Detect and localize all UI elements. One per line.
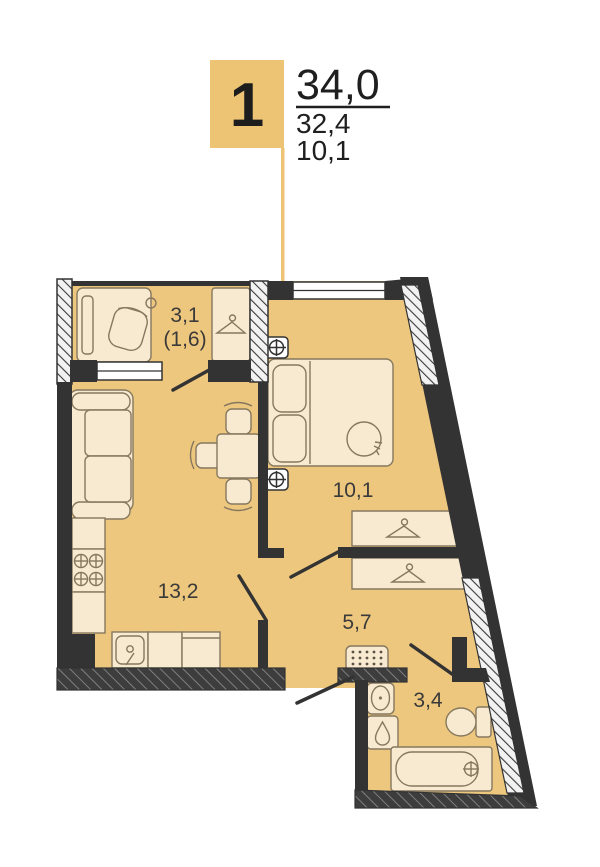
loggia-wardrobe: [212, 288, 250, 361]
bath-sink-icon: [367, 683, 394, 714]
doormat-icon: [346, 646, 388, 671]
loggia-area-label: 3,1: [170, 304, 199, 327]
bedroom-wardrobe-top: [352, 511, 462, 546]
stove-burners-icon: [72, 549, 105, 592]
loggia-reduced-area-label: (1,6): [163, 328, 206, 351]
desk-chair-icon: [77, 288, 156, 362]
toilet-icon: [446, 707, 491, 737]
badge-connector-line: [281, 148, 285, 281]
unit-badge: 1: [210, 60, 285, 281]
water-heater: [367, 716, 398, 749]
living-kitchen-area-label: 13,2: [158, 580, 199, 603]
kitchen-area-value: 10,1: [296, 135, 351, 166]
total-area-value: 34,0: [296, 61, 380, 109]
bed-icon: [268, 359, 393, 466]
kitchen-sink-icon: [112, 632, 148, 668]
bedroom-area-label: 10,1: [333, 479, 374, 502]
bathroom-area-label: 3,4: [413, 689, 443, 712]
bathtub-icon: [391, 747, 492, 791]
hallway-area-label: 5,7: [342, 611, 371, 634]
area-summary: 34,0 32,4 10,1: [296, 61, 390, 166]
bedroom-wardrobe-bottom: [352, 558, 471, 589]
floor-plan-page: 1 34,0 32,4 10,1: [0, 0, 600, 867]
unit-number: 1: [230, 71, 264, 140]
floor-plan: 1 34,0 32,4 10,1: [0, 0, 600, 867]
outlet-icon: [265, 469, 288, 490]
sofa-icon: [69, 390, 133, 519]
